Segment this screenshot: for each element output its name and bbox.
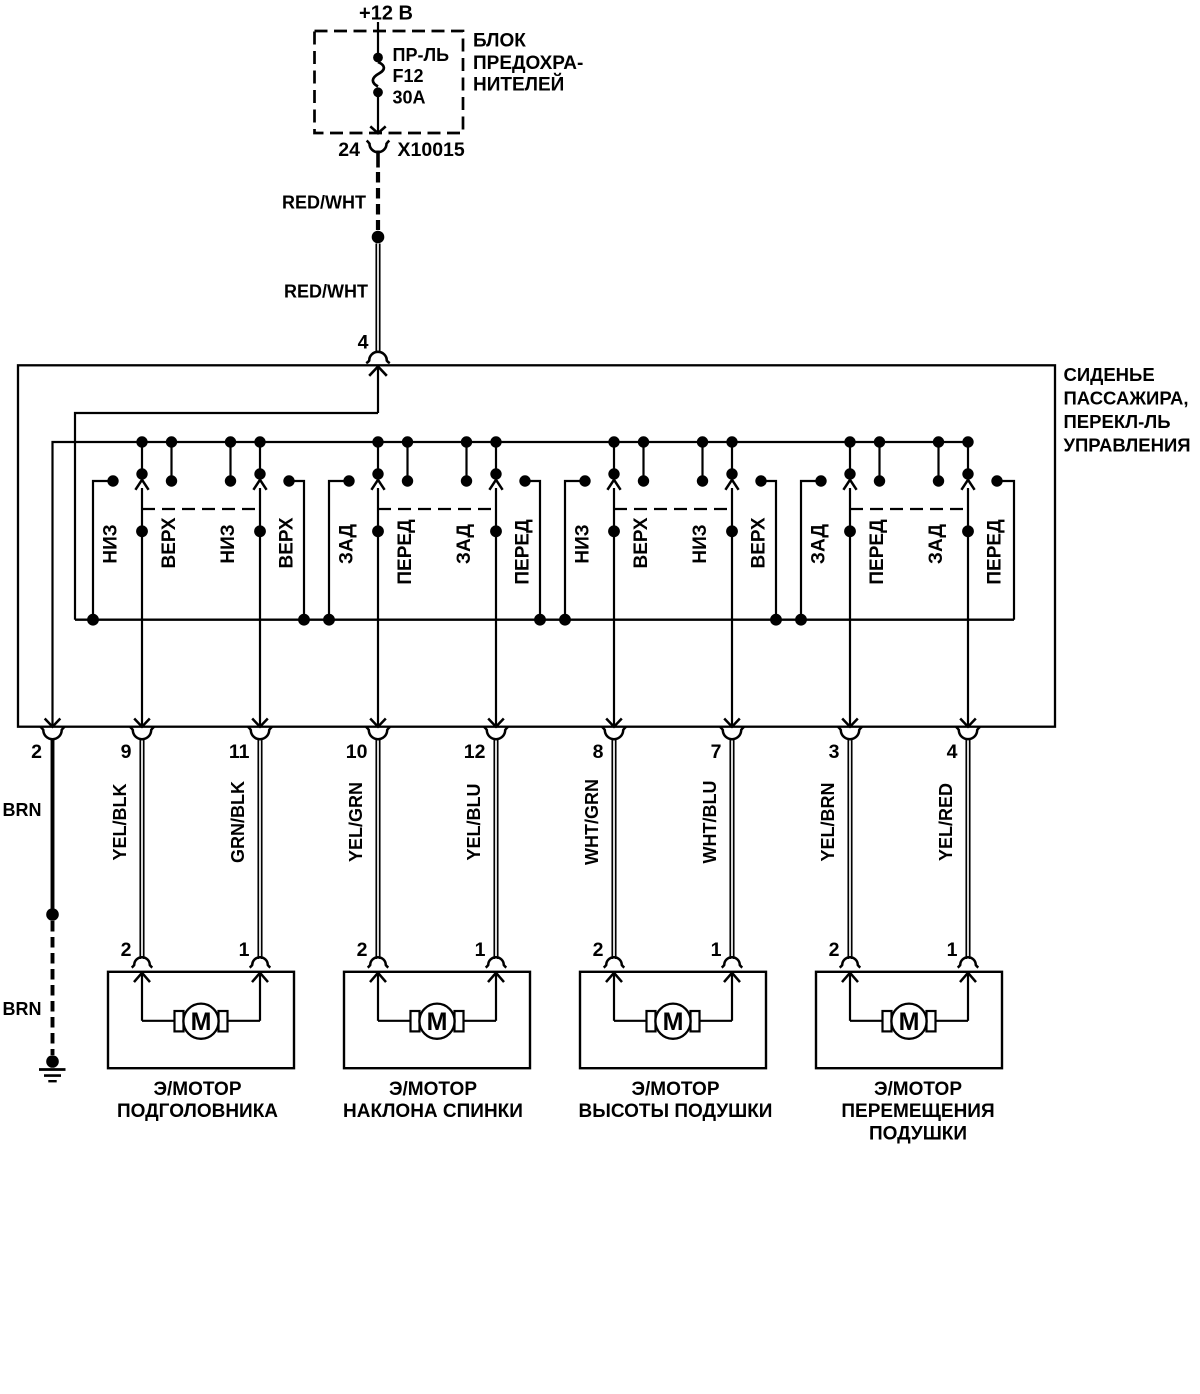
svg-text:Э/МОТОР: Э/МОТОР xyxy=(389,1079,477,1100)
svg-text:Э/МОТОР: Э/МОТОР xyxy=(154,1079,242,1100)
svg-text:M: M xyxy=(899,1008,920,1036)
svg-text:ПЕРЕД: ПЕРЕД xyxy=(985,519,1006,585)
svg-text:2: 2 xyxy=(829,939,840,961)
svg-text:YEL/BLU: YEL/BLU xyxy=(464,783,484,860)
svg-text:GRN/BLK: GRN/BLK xyxy=(228,781,248,863)
svg-text:НИЗ: НИЗ xyxy=(101,524,122,563)
svg-text:ПАССАЖИРА,: ПАССАЖИРА, xyxy=(1064,388,1189,409)
svg-text:НИЗ: НИЗ xyxy=(218,524,239,563)
svg-text:ВЕРХ: ВЕРХ xyxy=(159,517,180,568)
svg-text:ВЕРХ: ВЕРХ xyxy=(749,517,770,568)
svg-text:Э/МОТОР: Э/МОТОР xyxy=(632,1079,720,1100)
svg-text:1: 1 xyxy=(711,939,722,961)
svg-text:9: 9 xyxy=(121,741,132,763)
svg-text:ПОДУШКИ: ПОДУШКИ xyxy=(869,1123,967,1144)
svg-text:1: 1 xyxy=(947,939,958,961)
svg-text:ЗАД: ЗАД xyxy=(454,524,475,564)
svg-text:11: 11 xyxy=(229,741,250,763)
svg-text:RED/WHT: RED/WHT xyxy=(284,282,368,302)
svg-text:BRN: BRN xyxy=(3,999,42,1019)
svg-text:ВЫСОТЫ ПОДУШКИ: ВЫСОТЫ ПОДУШКИ xyxy=(579,1101,773,1122)
svg-text:12: 12 xyxy=(464,741,486,763)
svg-text:1: 1 xyxy=(239,939,250,961)
svg-text:YEL/BLK: YEL/BLK xyxy=(110,783,130,860)
svg-text:24: 24 xyxy=(338,139,360,161)
svg-text:2: 2 xyxy=(31,741,42,763)
svg-text:ПЕРЕМЕЩЕНИЯ: ПЕРЕМЕЩЕНИЯ xyxy=(841,1101,994,1122)
svg-text:ПРЕДОХРА-: ПРЕДОХРА- xyxy=(473,53,583,74)
svg-text:YEL/RED: YEL/RED xyxy=(936,783,956,861)
svg-text:ПЕРЕКЛ-ЛЬ: ПЕРЕКЛ-ЛЬ xyxy=(1064,411,1171,432)
svg-text:7: 7 xyxy=(711,741,722,763)
svg-text:НАКЛОНА СПИНКИ: НАКЛОНА СПИНКИ xyxy=(343,1101,523,1122)
svg-text:ВЕРХ: ВЕРХ xyxy=(631,517,652,568)
svg-text:M: M xyxy=(427,1008,448,1036)
svg-text:F12: F12 xyxy=(393,66,424,86)
svg-text:ЗАД: ЗАД xyxy=(926,524,947,564)
svg-text:2: 2 xyxy=(357,939,368,961)
svg-text:ЗАД: ЗАД xyxy=(809,524,830,564)
svg-text:УПРАВЛЕНИЯ: УПРАВЛЕНИЯ xyxy=(1064,435,1191,456)
svg-text:ПР-ЛЬ: ПР-ЛЬ xyxy=(393,45,450,65)
svg-text:ПЕРЕД: ПЕРЕД xyxy=(867,519,888,585)
svg-text:ЗАД: ЗАД xyxy=(337,524,358,564)
svg-text:X10015: X10015 xyxy=(398,139,465,161)
svg-text:RED/WHT: RED/WHT xyxy=(282,193,366,213)
svg-text:НИТЕЛЕЙ: НИТЕЛЕЙ xyxy=(473,73,564,95)
svg-text:2: 2 xyxy=(121,939,132,961)
svg-text:8: 8 xyxy=(593,741,604,763)
svg-text:ПОДГОЛОВНИКА: ПОДГОЛОВНИКА xyxy=(117,1101,278,1122)
svg-text:ПЕРЕД: ПЕРЕД xyxy=(513,519,534,585)
svg-text:M: M xyxy=(191,1008,212,1036)
svg-text:4: 4 xyxy=(947,741,958,763)
svg-text:Э/МОТОР: Э/МОТОР xyxy=(874,1079,962,1100)
svg-text:M: M xyxy=(663,1008,684,1036)
svg-text:1: 1 xyxy=(475,939,486,961)
svg-text:2: 2 xyxy=(593,939,604,961)
svg-text:WHT/BLU: WHT/BLU xyxy=(700,781,720,864)
svg-text:YEL/GRN: YEL/GRN xyxy=(346,782,366,862)
svg-text:3: 3 xyxy=(829,741,840,763)
svg-text:10: 10 xyxy=(346,741,368,763)
svg-text:БЛОК: БЛОК xyxy=(473,31,526,52)
svg-text:4: 4 xyxy=(358,332,369,354)
svg-text:WHT/GRN: WHT/GRN xyxy=(582,779,602,865)
svg-text:+12 В: +12 В xyxy=(359,3,413,25)
svg-text:30А: 30А xyxy=(393,88,426,108)
svg-text:ВЕРХ: ВЕРХ xyxy=(277,517,298,568)
svg-text:YEL/BRN: YEL/BRN xyxy=(818,782,838,861)
svg-text:СИДЕНЬЕ: СИДЕНЬЕ xyxy=(1064,364,1155,385)
svg-text:BRN: BRN xyxy=(3,800,42,820)
svg-text:НИЗ: НИЗ xyxy=(690,524,711,563)
svg-text:НИЗ: НИЗ xyxy=(573,524,594,563)
svg-text:ПЕРЕД: ПЕРЕД xyxy=(395,519,416,585)
